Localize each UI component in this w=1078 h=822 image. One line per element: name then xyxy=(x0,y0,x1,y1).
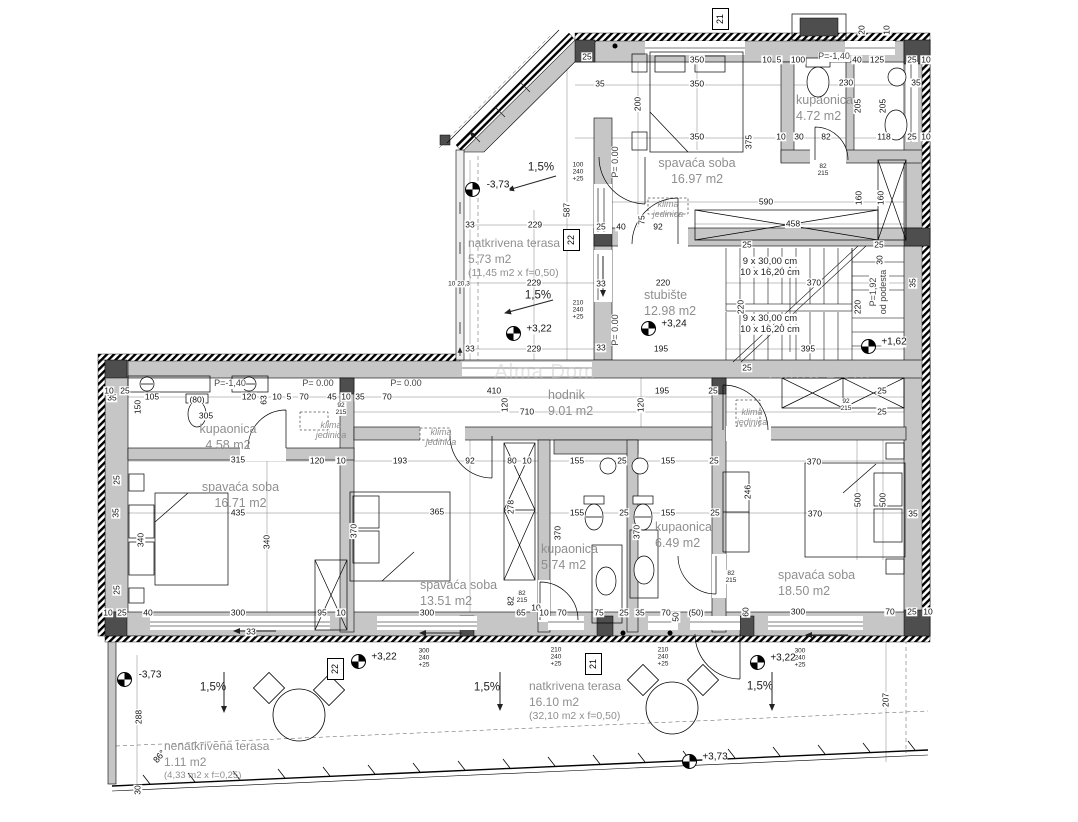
section-marker-label: 22 xyxy=(566,235,576,245)
dimension-label: 75 xyxy=(637,214,646,225)
dimension-label: 300 xyxy=(419,608,435,617)
dimension-label: 25 xyxy=(707,386,718,395)
dimension-label: 70 xyxy=(556,608,567,617)
level-label: P=1,92 od podesta xyxy=(869,270,889,315)
dimension-label: 370 xyxy=(632,524,641,540)
dimension-label: 25 xyxy=(595,222,606,231)
door-size-label: 92 215 xyxy=(841,398,852,412)
dimension-label: 105 xyxy=(144,392,160,401)
dimension-label: 10 xyxy=(335,608,346,617)
elevation-label: +3,22 xyxy=(770,653,795,664)
dimension-label: 25 xyxy=(708,456,719,465)
dimension-label: 125 xyxy=(869,55,885,64)
dimension-label: 70 xyxy=(381,392,392,401)
dimension-label: 120 xyxy=(636,397,645,413)
room-label-bedroom-1351: spavaća soba13.51 m2 xyxy=(420,577,497,610)
room-label-bathroom-574: kupaonica5.74 m2 xyxy=(541,541,598,574)
elevation-marker-icon xyxy=(641,321,656,336)
dimension-label: 25 xyxy=(581,52,592,61)
dimension-label: 25 xyxy=(906,607,917,616)
ac-unit-label: klima jedinica xyxy=(653,200,684,220)
dimension-label: 230 xyxy=(838,78,854,87)
dimension-label: 20 xyxy=(857,24,866,35)
section-marker-label: 21 xyxy=(715,14,725,24)
dimension-label: 35 xyxy=(908,277,917,288)
slope-label: 1,5% xyxy=(200,682,226,695)
room-label-covered-terrace-1610: natkrivena terasa16.10 m2 (32,10 m2 x f=… xyxy=(529,679,621,724)
dimension-label: 229 xyxy=(527,220,543,229)
dimension-label: 25 xyxy=(741,363,752,372)
dimension-label: 10 xyxy=(340,392,351,401)
dimension-label: 30 xyxy=(793,132,804,141)
dimension-label: (80) xyxy=(188,395,205,404)
dimension-label: 25 xyxy=(116,608,127,617)
dimension-label: 370 xyxy=(806,278,822,287)
ac-unit-label: klima jedinica xyxy=(316,421,347,441)
dimension-label: 10 xyxy=(103,386,114,395)
dimension-label: 95 xyxy=(316,608,327,617)
dimension-label: 229 xyxy=(526,344,542,353)
dimension-label: 10 xyxy=(335,456,346,465)
dimension-label: 40 xyxy=(615,222,626,231)
dimension-label: 35 xyxy=(907,509,918,518)
dimension-label: 315 xyxy=(230,455,246,464)
level-label: P=-1,40 xyxy=(214,379,246,389)
dimension-label: 375 xyxy=(744,134,753,150)
room-label-hallway: hodnik9.01 m2 xyxy=(548,387,593,420)
dimension-label: 370 xyxy=(349,523,358,539)
dimension-label: 92 xyxy=(464,456,475,465)
dimension-label: 120 xyxy=(500,397,509,413)
ac-unit-label: klima jedinica xyxy=(426,428,457,448)
elevation-label: -3,73 xyxy=(487,180,510,191)
dimension-label: 30 xyxy=(133,784,142,795)
elevation-label: +3,24 xyxy=(661,319,686,330)
dimension-label: 300 xyxy=(790,607,806,616)
level-label: P= 0.00 xyxy=(611,146,621,177)
dimension-label: 25 xyxy=(741,240,752,249)
stair-dimension-note: 9 x 30,00 cm xyxy=(743,257,797,267)
section-marker: 21 xyxy=(585,653,602,675)
dimension-label: 350 xyxy=(689,132,705,141)
section-marker-label: 22 xyxy=(330,664,340,674)
dimension-label: 35 xyxy=(111,507,120,518)
level-label: P= 0.00 xyxy=(302,379,333,389)
room-label-uncovered-terrace: nenatkrivena terasa1.11 m2 (4,33 m2 x f=… xyxy=(164,739,269,783)
window-size-label: 210 240 +25 xyxy=(572,299,583,320)
room-label-bathroom-472: kupaonica4.72 m2 xyxy=(796,92,853,125)
dimension-label: 25 xyxy=(873,240,884,249)
section-marker: 22 xyxy=(327,658,344,680)
dimension-label: 40 xyxy=(142,608,153,617)
dimension-label: 195 xyxy=(653,344,669,353)
dimension-label: 10 xyxy=(882,24,891,35)
slope-label: 1,5% xyxy=(528,162,554,175)
door-size-label: 92 215 xyxy=(336,402,347,416)
dimension-label: 25 xyxy=(906,55,917,64)
stair-dimension-note: 10 x 16,20 cm xyxy=(740,325,800,335)
room-label-staircase: stubište12.98 m2 xyxy=(644,287,696,320)
dimension-label: 70 xyxy=(884,607,895,616)
dimension-label: 195 xyxy=(654,386,670,395)
dimension-label: 340 xyxy=(262,534,271,550)
elevation-label: -3,73 xyxy=(139,670,162,681)
section-marker-label: 21 xyxy=(588,659,598,669)
dimension-label: 33 xyxy=(464,220,475,229)
dimension-label: 25 xyxy=(112,474,121,485)
dimension-label: 25 xyxy=(112,584,121,595)
dimension-label: 150 xyxy=(133,399,142,415)
elevation-label: +1,62 xyxy=(881,337,906,348)
dimension-label: 5 xyxy=(286,392,293,401)
dimension-label: 75 xyxy=(593,608,604,617)
watermark: Alma Dom xyxy=(769,361,870,383)
dimension-label: 25 xyxy=(906,132,917,141)
annotation-layer: spavaća soba16.97 m2 kupaonica4.72 m2 na… xyxy=(0,0,1078,822)
room-label-covered-terrace-573: natkrivena terasa5.73 m2 (11,45 m2 x f=0… xyxy=(468,236,560,281)
dimension-label: 155 xyxy=(660,456,676,465)
room-label-bathroom-458: kupaonica4.58 m2 xyxy=(168,421,288,454)
dimension-label: 10 xyxy=(521,456,532,465)
window-size-label: 210 240 +25 xyxy=(550,646,561,667)
slope-label: 1,5% xyxy=(474,682,500,695)
window-size-label: 100 240 +25 xyxy=(572,161,583,182)
dimension-label: 100 xyxy=(790,55,806,64)
dimension-label: 10 xyxy=(761,55,772,64)
dimension-label: 500 xyxy=(878,492,887,508)
dimension-label: 120 xyxy=(309,456,325,465)
dimension-label: 220 xyxy=(853,299,862,315)
dimension-label: 25 xyxy=(618,508,629,517)
dimension-label: 25 xyxy=(709,508,720,517)
elevation-marker-icon xyxy=(861,339,876,354)
dimension-label: 25 xyxy=(618,608,629,617)
dimension-label: 10 xyxy=(102,608,113,617)
dimension-label: 207 xyxy=(881,692,890,708)
dimension-label: 33 xyxy=(595,343,606,352)
room-label-bathroom-649: kupaonica6.49 m2 xyxy=(655,519,712,552)
watermark: Alma Dom xyxy=(494,361,595,383)
room-label-bedroom-1850: spavaća soba18.50 m2 xyxy=(778,567,855,600)
dimension-label: 25 xyxy=(616,456,627,465)
dimension-label: 305 xyxy=(198,411,214,420)
dimension-label: 365 xyxy=(429,507,445,516)
level-label: P= 0.00 xyxy=(611,314,621,345)
elevation-label: +3,22 xyxy=(371,652,396,663)
dimension-label: 155 xyxy=(569,456,585,465)
dimension-label: 193 xyxy=(392,456,408,465)
dimension-label: 160 xyxy=(854,190,863,206)
dimension-label: 82 xyxy=(506,595,515,606)
dimension-label: 229 xyxy=(526,278,542,287)
dimension-label: 155 xyxy=(660,508,676,517)
dimension-label: 35 xyxy=(594,79,605,88)
elevation-marker-icon xyxy=(506,326,521,341)
dimension-label: 10 xyxy=(271,392,282,401)
door-size-label: 82 215 xyxy=(818,163,829,177)
dimension-label: 25 xyxy=(876,386,887,395)
dimension-label: 435 xyxy=(230,508,246,517)
dimension-label: 33 xyxy=(595,279,606,288)
dimension-label: 370 xyxy=(806,457,822,466)
dimension-label: 63 xyxy=(259,394,268,405)
level-label: P=-1,40 xyxy=(818,52,850,62)
dimension-label: 288 xyxy=(134,709,143,725)
dimension-label: 246 xyxy=(743,484,752,500)
dimension-label: 205 xyxy=(853,98,862,114)
dimension-label: 200 xyxy=(633,96,642,112)
dimension-label: 40 xyxy=(851,55,862,64)
dimension-label: 587 xyxy=(562,202,571,218)
dimension-label: 458 xyxy=(785,219,801,228)
dimension-label: 10 xyxy=(920,132,931,141)
section-marker: 21 xyxy=(712,8,729,30)
elevation-label: +3,73 xyxy=(702,752,727,763)
dimension-label: 30 xyxy=(875,254,884,265)
door-size-label: 10 20,3 xyxy=(448,280,470,287)
dimension-label: 395 xyxy=(800,344,816,353)
dimension-label: 80 xyxy=(506,456,517,465)
elevation-marker-icon xyxy=(750,655,765,670)
dimension-label: 25 xyxy=(876,407,887,416)
elevation-marker-icon xyxy=(351,654,366,669)
dimension-label: 10 xyxy=(538,608,549,617)
window-size-label: 300 240 +25 xyxy=(794,647,805,668)
section-marker: 22 xyxy=(563,229,580,251)
dimension-label: 370 xyxy=(807,509,823,518)
dimension-label: 10 xyxy=(775,132,786,141)
dimension-label: 70 xyxy=(298,392,309,401)
dimension-label: 65 xyxy=(515,608,526,617)
dimension-label: 500 xyxy=(853,492,862,508)
elevation-marker-icon xyxy=(117,672,132,687)
dimension-label: 350 xyxy=(689,79,705,88)
dimension-label: 120 xyxy=(241,392,257,401)
dimension-label: 155 xyxy=(569,508,585,517)
dimension-label: 710 xyxy=(519,407,535,416)
dimension-label: 10 xyxy=(922,607,933,616)
window-size-label: 300 240 +25 xyxy=(418,647,429,668)
dimension-label: 220 xyxy=(655,278,671,287)
elevation-label: +3,22 xyxy=(526,324,551,335)
window-size-label: 210 240 +25 xyxy=(657,646,668,667)
dimension-label: 5 xyxy=(776,55,783,64)
dimension-label: 410 xyxy=(486,386,502,395)
floor-plan-page: spavaća soba16.97 m2 kupaonica4.72 m2 na… xyxy=(0,0,1078,822)
slope-label: 1,5% xyxy=(525,290,551,303)
door-size-label: 82 215 xyxy=(517,590,528,604)
room-label-bedroom-1697: spavaća soba16.97 m2 xyxy=(637,155,757,188)
dimension-label: 33 xyxy=(464,344,475,353)
dimension-label: 60 xyxy=(741,606,750,617)
dimension-label: 10 xyxy=(920,55,931,64)
dimension-label: 370 xyxy=(553,525,562,541)
dimension-label: 50 xyxy=(671,611,680,622)
dimension-label: 590 xyxy=(758,197,774,206)
slope-label: 1,5% xyxy=(747,681,773,694)
dimension-label: 45 xyxy=(326,392,337,401)
dimension-label: 350 xyxy=(689,55,705,64)
dimension-label: 118 xyxy=(876,132,892,141)
dimension-label: 340 xyxy=(136,532,145,548)
dimension-label: 35 xyxy=(354,392,365,401)
elevation-marker-icon xyxy=(682,754,697,769)
dimension-label: 92 xyxy=(652,222,663,231)
dimension-label: 25 xyxy=(119,386,130,395)
elevation-marker-icon xyxy=(465,182,480,197)
stair-dimension-note: 9 x 30,00 cm xyxy=(743,314,797,324)
ac-unit-label: klima jedinica xyxy=(737,408,768,428)
door-size-label: 82 215 xyxy=(726,570,737,584)
dimension-label: 205 xyxy=(878,98,887,114)
dimension-label: 33 xyxy=(245,627,256,636)
dimension-label: 35 xyxy=(634,608,645,617)
stair-dimension-note: 10 x 16,20 cm xyxy=(740,268,800,278)
dimension-label: 278 xyxy=(506,499,515,515)
dimension-label: 82 xyxy=(820,132,831,141)
dimension-label: 160 xyxy=(876,190,885,206)
dimension-label: (50) xyxy=(687,608,704,617)
dimension-label: 300 xyxy=(230,608,246,617)
level-label: P= 0.00 xyxy=(390,379,421,389)
dimension-label: 35 xyxy=(910,78,921,87)
